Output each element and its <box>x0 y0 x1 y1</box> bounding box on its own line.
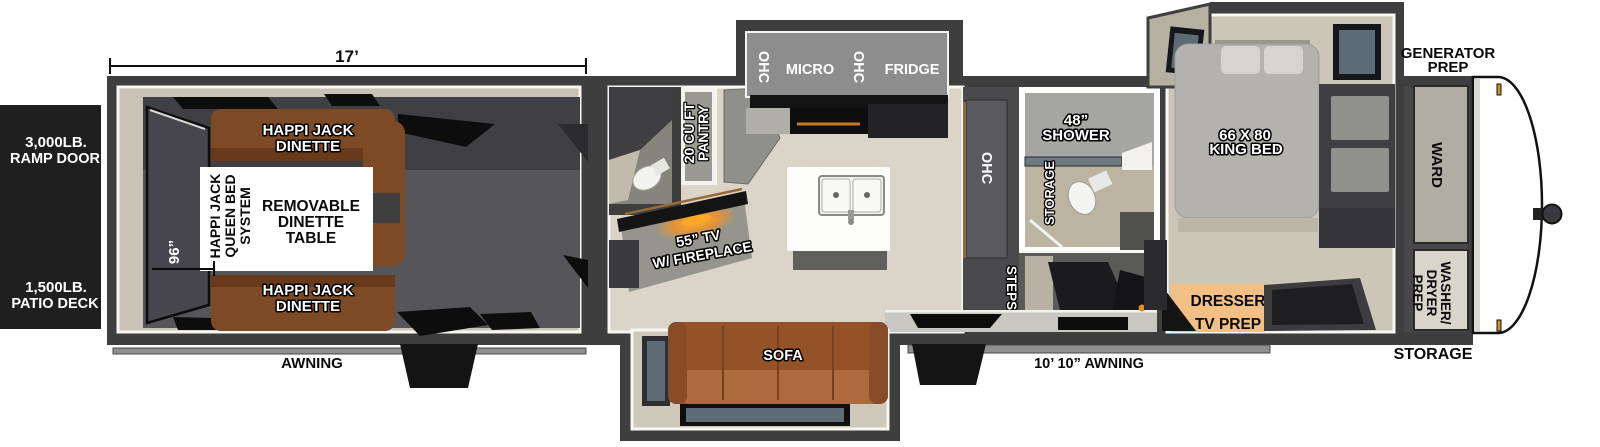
svg-text:DINETTE: DINETTE <box>276 138 340 155</box>
svg-text:SYSTEM: SYSTEM <box>237 187 253 245</box>
svg-text:SHOWER: SHOWER <box>1042 127 1110 144</box>
svg-text:OHC: OHC <box>755 51 771 84</box>
svg-text:MICRO: MICRO <box>786 62 834 78</box>
svg-text:HAPPI JACK: HAPPI JACK <box>263 282 354 299</box>
svg-text:HAPPI JACK: HAPPI JACK <box>207 174 223 259</box>
svg-text:DINETTE: DINETTE <box>278 214 344 231</box>
svg-text:10’ 10” AWNING: 10’ 10” AWNING <box>1034 356 1144 372</box>
svg-text:TABLE: TABLE <box>286 230 337 247</box>
svg-text:DRYER: DRYER <box>1424 270 1439 317</box>
svg-text:WARD: WARD <box>1428 142 1445 188</box>
svg-text:OHC: OHC <box>850 51 866 84</box>
svg-text:SOFA: SOFA <box>763 348 803 364</box>
svg-text:1,500LB.: 1,500LB. <box>25 279 87 296</box>
svg-text:HAPPI JACK: HAPPI JACK <box>263 122 354 139</box>
svg-text:QUEEN BED: QUEEN BED <box>222 174 238 257</box>
svg-text:17’: 17’ <box>335 47 359 66</box>
svg-text:RAMP DOOR: RAMP DOOR <box>10 151 100 167</box>
svg-text:DRESSER: DRESSER <box>1191 293 1266 310</box>
svg-text:KING BED: KING BED <box>1209 141 1283 158</box>
svg-text:OHC: OHC <box>978 152 994 185</box>
svg-text:STEPS: STEPS <box>1004 266 1019 310</box>
svg-text:96”: 96” <box>166 240 183 264</box>
svg-text:WASHER/: WASHER/ <box>1438 261 1453 324</box>
svg-text:PREP: PREP <box>1410 275 1425 312</box>
svg-text:AWNING: AWNING <box>281 355 343 372</box>
svg-text:FRIDGE: FRIDGE <box>885 62 940 78</box>
svg-text:PANTRY: PANTRY <box>695 104 711 161</box>
svg-text:3,000LB.: 3,000LB. <box>25 134 87 151</box>
svg-text:REMOVABLE: REMOVABLE <box>262 198 360 215</box>
svg-text:STORAGE: STORAGE <box>1394 346 1473 363</box>
svg-text:PATIO DECK: PATIO DECK <box>11 296 99 312</box>
svg-text:PREP: PREP <box>1428 59 1469 76</box>
svg-text:STORAGE: STORAGE <box>1042 161 1057 225</box>
svg-text:DINETTE: DINETTE <box>276 298 340 315</box>
svg-text:TV PREP: TV PREP <box>1195 316 1261 333</box>
